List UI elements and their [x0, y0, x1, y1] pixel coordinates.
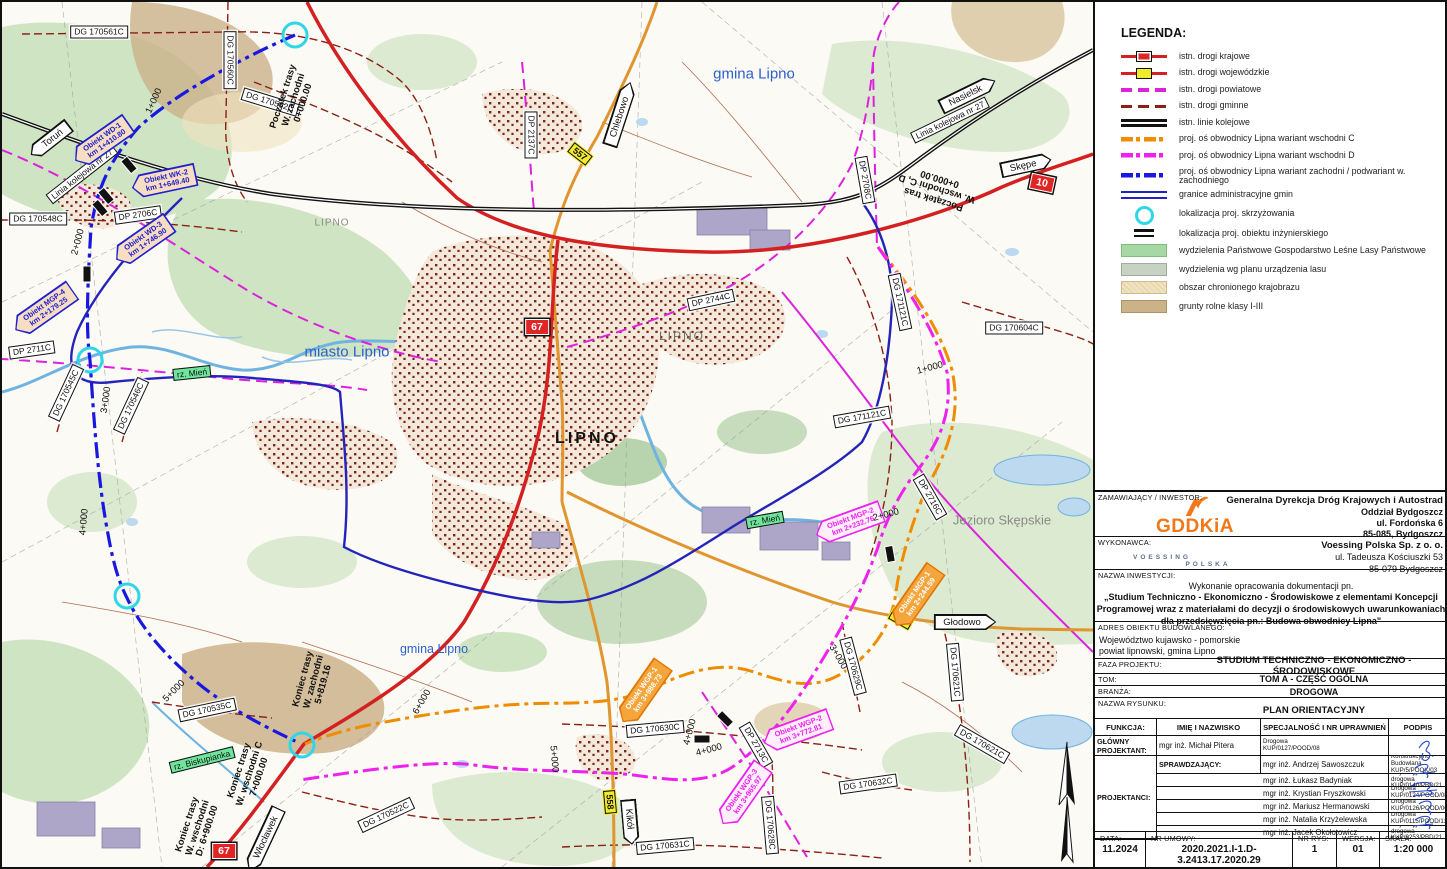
legend-item: proj. oś obwodnicy Lipna wariant wschodn… [1121, 150, 1437, 161]
legend-item: grunty rolne klasy I-III [1121, 300, 1437, 313]
junction-marker [289, 732, 316, 759]
swatch-grunty-rolne [1121, 300, 1167, 313]
km-marker: 6+000 [411, 688, 434, 717]
direction-sign-kikol: Kikół [620, 799, 640, 846]
legend-item: istn. drogi wojewódzkie [1121, 68, 1437, 79]
object-callout: Obiekt WGP-1km 3+988.73 [613, 657, 673, 729]
km-marker: 2+000 [69, 228, 87, 257]
legend-item: lokalizacja proj. obiektu inżynierskiego [1121, 228, 1437, 239]
road-shield-558: 558 [603, 790, 617, 814]
object-bar-marker [84, 267, 91, 282]
road-shield-67: 67 [525, 319, 549, 335]
river-label: rz. Biskupianka [169, 746, 236, 774]
legend-item: proj. oś obwodnicy Lipna wariant wschodn… [1121, 134, 1437, 145]
title-block-tom: TOM: TOM A - CZĘŚĆ OGÓLNA [1095, 674, 1447, 686]
legend-item: obszar chronionego krajobrazu [1121, 281, 1437, 294]
road-label: DG 170560C [224, 31, 237, 89]
road-label: DG 170630C [626, 720, 685, 738]
river-label: rz. Mień [172, 365, 211, 381]
swatch-linia-kolejowa [1121, 117, 1167, 128]
city-label-lipno: LIPNO [555, 430, 619, 448]
road-label: DG 170561C [70, 26, 128, 39]
legend-item: istn. linie kolejowe [1121, 117, 1437, 128]
object-callout: Obiekt WGP-2km 3+772.81 [760, 708, 835, 754]
junction-marker [282, 22, 309, 49]
side-panel: LEGENDA: istn. drogi krajowe istn. drogi… [1093, 2, 1447, 867]
map-labels-layer: gmina Lipno gmina Lipno miasto Lipno Jez… [2, 2, 1093, 867]
direction-sign-glodowo: Głodowo [934, 614, 997, 630]
swatch-granice [1121, 191, 1167, 199]
road-label: DP 2744C [687, 289, 736, 312]
title-block-address: ADRES OBIEKTU BUDOWLANEGO: Województwo k… [1095, 622, 1447, 659]
personnel-table: FUNKCJA: IMIĘ I NAZWISKO SPECJALNOŚĆ I N… [1095, 719, 1447, 832]
road-label: DG 170604C [985, 322, 1043, 335]
title-block-investor: ZAMAWIAJĄCY / INWESTOR: GDDKiA Generalna… [1095, 492, 1447, 537]
swatch-obiekt-inzynierski [1121, 228, 1167, 239]
road-label: DG 171121C [833, 406, 891, 429]
road-label: DP 2708C [855, 156, 876, 205]
swatch-droga-krajowa [1121, 51, 1167, 62]
km-marker: 1+000 [143, 87, 164, 116]
swatch-plan-urzadzenia-lasu [1121, 263, 1167, 276]
river-label: rz. Mień [745, 511, 785, 529]
route-end-west: Koniec trasyW. zachodni5+819.16 [291, 650, 337, 713]
km-marker: 4+000 [695, 741, 724, 759]
road-label: DG 170632C [839, 774, 898, 795]
swatch-droga-powiatowa [1121, 84, 1167, 95]
title-block-contractor: WYKONAWCA: VOESSINGPOLSKA Voessing Polsk… [1095, 537, 1447, 570]
road-label: DG 170522C [357, 797, 415, 833]
km-marker: 1+000 [916, 359, 945, 377]
swatch-lasy-panstwowe [1121, 244, 1167, 257]
city-label-lipno: LIPNO [659, 329, 705, 343]
object-callout: Obiekt MGP-4km 2+179.25 [9, 280, 80, 340]
object-bar-marker [695, 736, 710, 743]
km-marker: 4+000 [77, 508, 90, 536]
object-bar-marker [717, 711, 733, 727]
area-label-gmina-lipno: gmina Lipno [713, 66, 795, 83]
investor-address: Generalna Dyrekcja Dróg Krajowych i Auto… [1226, 495, 1443, 541]
swatch-droga-gminna [1121, 101, 1167, 112]
object-callout: Obiekt WK-2km 1+649.40 [129, 163, 198, 200]
road-shield-10: 10 [1029, 173, 1055, 194]
swatch-wariant-d [1121, 150, 1167, 161]
swatch-wariant-zachodni [1121, 170, 1167, 181]
road-label: DG 170621C [946, 643, 964, 702]
road-label: DP 2711C [8, 340, 56, 359]
road-label: DG 170546C [113, 377, 149, 435]
road-label: DG 170631C [636, 837, 695, 855]
area-label-jezioro-skepskie: Jezioro Skępskie [953, 513, 1051, 528]
title-block-drawing-name: NAZWA RYSUNKU: PLAN ORIENTACYJNY [1095, 698, 1447, 719]
route-start-west: Początek trasyW. zachodni0+000.00 [269, 63, 320, 136]
swatch-skrzyzowanie [1121, 205, 1167, 222]
legend-item: istn. drogi gminne [1121, 101, 1437, 112]
title-block: ZAMAWIAJĄCY / INWESTOR: GDDKiA Generalna… [1095, 490, 1447, 867]
legend: LEGENDA: istn. drogi krajowe istn. drogi… [1095, 2, 1447, 313]
swatch-wariant-c [1121, 134, 1167, 145]
area-label-miasto-lipno: miasto Lipno [304, 344, 389, 361]
direction-sign-skepe: Skępe [999, 152, 1053, 178]
legend-item: istn. drogi krajowe [1121, 51, 1437, 62]
legend-item: proj. oś obwodnicy Lipna wariant zachodn… [1121, 167, 1437, 185]
road-label: DG 170548C [9, 213, 67, 226]
route-start-east-cd: Początek trasW. wschodni C, D0+000.00 [894, 161, 979, 215]
km-marker: 3+000 [99, 386, 114, 414]
road-shield-557: 557 [567, 142, 593, 166]
area-label-gmina-lipno: gmina Lipno [400, 642, 468, 656]
legend-item: istn. drogi powiatowe [1121, 84, 1437, 95]
object-bar-marker [98, 188, 113, 204]
road-label: DP 2137C [525, 111, 538, 158]
km-marker: 5+000 [547, 745, 560, 773]
legend-item: wydzielenia Państwowe Gospodarstwo Leśne… [1121, 244, 1437, 257]
direction-sign-chlebowo: Chlebowo [602, 80, 638, 149]
road-label: DG 170628C [761, 796, 779, 855]
drawing-sheet: gmina Lipno gmina Lipno miasto Lipno Jez… [0, 0, 1447, 869]
swatch-obszar-chroniony [1121, 281, 1167, 294]
object-bar-marker [121, 157, 136, 173]
legend-item: lokalizacja proj. skrzyżowania [1121, 205, 1437, 222]
title-block-branch: BRANŻA: DROGOWA [1095, 686, 1447, 698]
junction-marker [114, 583, 141, 610]
title-block-phase: FAZA PROJEKTU: STUDIUM TECHNICZNO - EKON… [1095, 659, 1447, 674]
object-bar-marker [885, 546, 894, 562]
object-bar-marker [92, 200, 107, 216]
swatch-droga-wojewodzka [1121, 68, 1167, 79]
km-marker: 5+000 [161, 678, 188, 705]
road-shield-67: 67 [212, 843, 236, 859]
road-label: DP 2716C [913, 473, 948, 520]
direction-sign-torun: Toruń [26, 119, 74, 162]
legend-item: granice administracyjne gmin [1121, 190, 1437, 199]
city-label-lipno: LIPNO [314, 218, 349, 229]
title-block-investment: NAZWA INWESTYCJI: Wykonanie opracowania … [1095, 570, 1447, 622]
road-label: DG 170545C [48, 364, 84, 422]
legend-item: wydzielenia wg planu urządzenia lasu [1121, 263, 1437, 276]
legend-title: LEGENDA: [1121, 26, 1437, 40]
direction-sign-wloclawek: Włocławek [242, 805, 286, 869]
road-label: DG 171121C [888, 273, 913, 331]
road-label: DG 170535C [177, 698, 236, 723]
road-label: DG 170621C [954, 724, 1010, 764]
